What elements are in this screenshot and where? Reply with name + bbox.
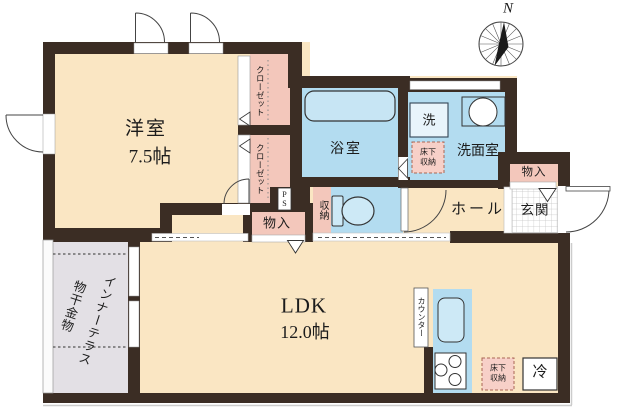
label-storage-right: 物入 [522,167,547,179]
terrace-window-bottom [129,301,139,347]
label-closet-top: クローゼット [256,66,265,117]
label-counter: カウンター [417,297,425,337]
toilet-bowl [342,197,374,225]
stove-burner-3 [449,374,461,386]
label-compass-north: N [503,2,513,17]
label-toilet-storage: 収納 [317,200,327,220]
toilet-tank [332,196,343,226]
window-top-2 [189,43,223,54]
inner-terrace-floor [43,240,128,393]
label-closet-bottom: クローゼット [256,144,265,195]
ldk-boundary-strip-left [152,234,248,242]
terrace-window-top [129,247,139,296]
label-ldk-size: 12.0帖 [280,323,330,341]
bathtub [305,91,395,121]
stove-burner-1 [449,356,461,368]
label-western-room-size: 7.5帖 [129,148,172,167]
entry-door-opening [558,186,570,233]
entry-door-leaf [566,187,610,192]
label-pipe-space: PS [280,190,288,208]
label-hall: ホール [451,203,505,218]
label-storage-middle: 物入 [263,217,291,230]
washroom-window [410,81,500,90]
label-entrance: 玄関 [521,203,550,217]
label-washer: 洗 [422,114,435,127]
vanity-sink [469,98,497,126]
compass-rose [479,22,523,66]
toilet-door-leaf [401,188,408,231]
label-western-room: 洋室 [125,120,167,139]
western-room-door-opening [222,204,250,215]
storage-right-door [510,182,556,189]
kitchen-sink [438,298,464,342]
label-underfloor-washroom: 床下収納 [419,147,438,166]
terrace-outer-wall [43,240,53,393]
window-top-1 [134,43,168,54]
label-ldk: LDK [281,296,327,317]
label-bathroom: 浴室 [330,143,362,157]
floor-plan: 洋室 7.5帖 LDK 12.0帖 浴室 洗面室 洗 ホール 玄関 物入 物入 … [0,0,626,411]
western-room-side-door-opening [43,114,55,154]
stove-burner-2 [435,364,447,376]
label-fridge: 冷 [532,366,547,381]
label-washroom: 洗面室 [457,145,499,159]
entrance-step [504,187,512,233]
label-underfloor-kitchen: 床下収納 [489,363,508,382]
